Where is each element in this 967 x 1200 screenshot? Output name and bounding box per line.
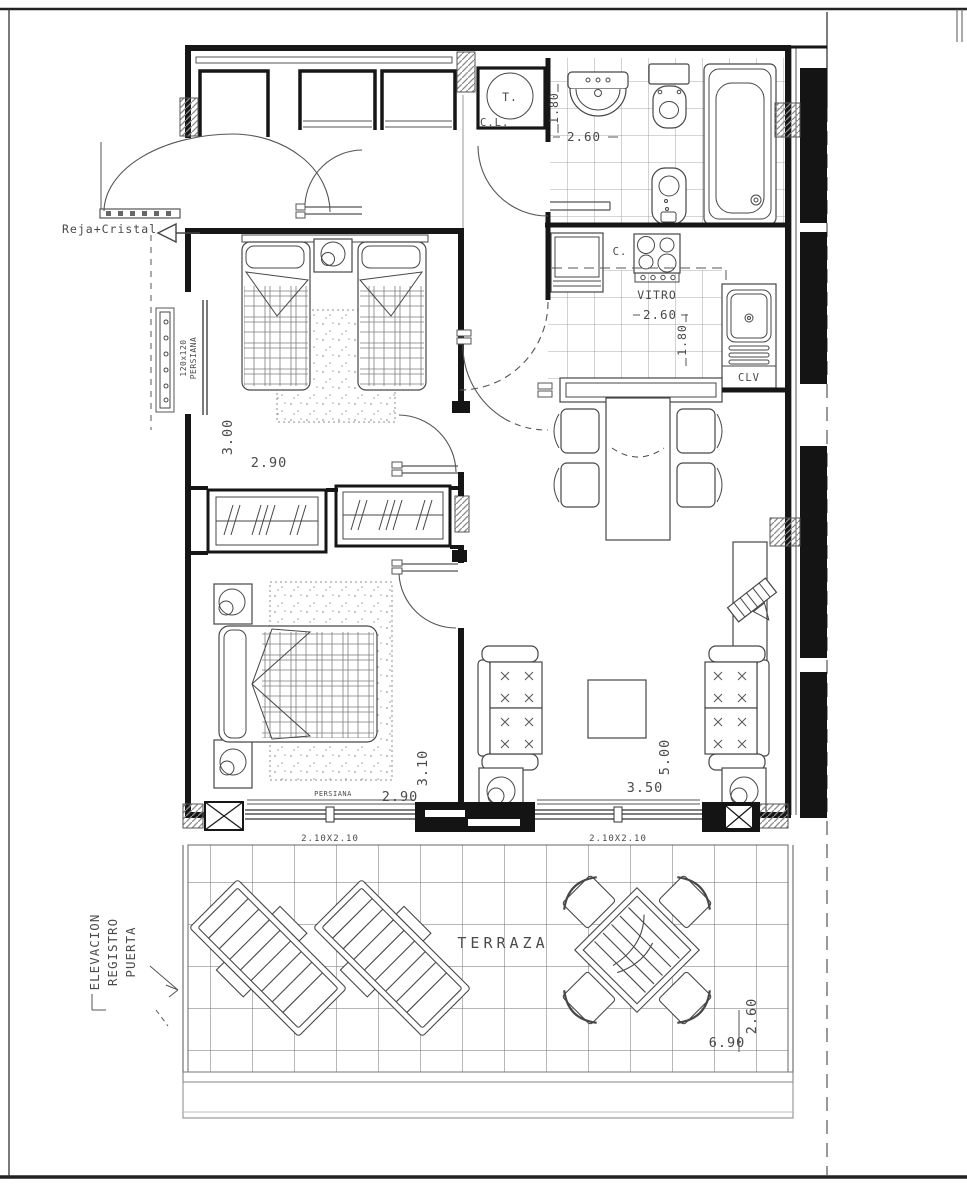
- twin-bed-right-icon: [358, 242, 426, 390]
- sink-unit-label: CLV: [738, 372, 760, 384]
- kitchen-width-dim: 2.60: [643, 307, 677, 322]
- double-bed-icon: [219, 626, 377, 742]
- nightstand-icon: [214, 740, 252, 788]
- living-dining: [478, 398, 787, 814]
- tv-cabinet: [728, 542, 787, 662]
- left-window-size: 120x120: [179, 339, 188, 376]
- floorplan-sheet: T. C.L.: [0, 0, 967, 1200]
- dining-chair-icon: [554, 409, 599, 453]
- twin-bedroom-door: [392, 415, 458, 476]
- double-bedroom-door: [392, 560, 458, 628]
- svg-text:PUERTA: PUERTA: [123, 926, 138, 977]
- dining-chair-icon: [677, 463, 722, 507]
- wardrobes: [208, 486, 469, 552]
- svg-text:ELEVACION: ELEVACION: [87, 914, 102, 991]
- svg-text:REGISTRO: REGISTRO: [105, 918, 120, 986]
- bidet-icon: [652, 168, 686, 224]
- bath-depth-dim: 1.80: [547, 92, 561, 124]
- living-width-dim: 3.50: [627, 780, 664, 796]
- twin-depth-dim: 3.00: [220, 419, 236, 456]
- coffee-table-icon: [588, 680, 646, 738]
- sofa-icon: [705, 646, 769, 770]
- window-terrace-right: [535, 800, 702, 822]
- neighbour-boundary: [791, 12, 827, 1176]
- terrace-width-dim: 6.90: [709, 1035, 746, 1051]
- double-depth-dim: 3.10: [415, 750, 431, 787]
- floorplan-drawing: T. C.L.: [0, 0, 967, 1200]
- heater-label: T.: [502, 90, 518, 104]
- bath-width-dim: 2.60: [567, 129, 601, 144]
- window-size-label: 2.10X2.10: [301, 834, 359, 844]
- reja-cristal-label: Reja+Cristal: [62, 222, 157, 236]
- double-width-dim: 2.90: [382, 789, 419, 805]
- fridge-icon: [551, 233, 603, 292]
- left-window-type: PERSIANA: [189, 337, 198, 380]
- dining-table-icon: [606, 398, 670, 540]
- bathtub-icon: [704, 64, 776, 224]
- reja-arrow-icon: [158, 224, 200, 242]
- bottom-wall: [205, 800, 760, 832]
- heater-closet: T. C.L.: [478, 68, 545, 129]
- kitchen-depth-dim: 1.80: [675, 324, 689, 356]
- sofa-icon: [478, 646, 542, 770]
- cooktop-label: VITRO: [637, 288, 677, 302]
- toilet-icon: [649, 64, 689, 128]
- kitchen-door: [460, 302, 552, 397]
- dining-chair-icon: [677, 409, 722, 453]
- elevation-note: ELEVACION REGISTRO PUERTA: [87, 914, 178, 1026]
- window-size-label: 2.10X2.10: [589, 834, 647, 844]
- terrace-depth-dim: 2.60: [744, 998, 760, 1035]
- left-window: [151, 235, 207, 430]
- nightstand-icon: [314, 239, 352, 272]
- dining-chair-icon: [554, 463, 599, 507]
- corridor-door: [457, 330, 548, 430]
- twin-bed-left-icon: [242, 242, 310, 390]
- blind-label: PERSIANA: [314, 790, 352, 798]
- kitchen-counter-label: C.: [613, 246, 628, 258]
- twin-width-dim: 2.90: [251, 455, 288, 471]
- terrace-label: TERRAZA: [457, 934, 548, 952]
- closet-label: C.L.: [480, 117, 509, 129]
- hall-closets: [196, 52, 475, 228]
- living-depth-dim: 5.00: [657, 739, 673, 776]
- elevation-arrow-icon: [150, 966, 178, 1026]
- nightstand-icon: [214, 584, 252, 624]
